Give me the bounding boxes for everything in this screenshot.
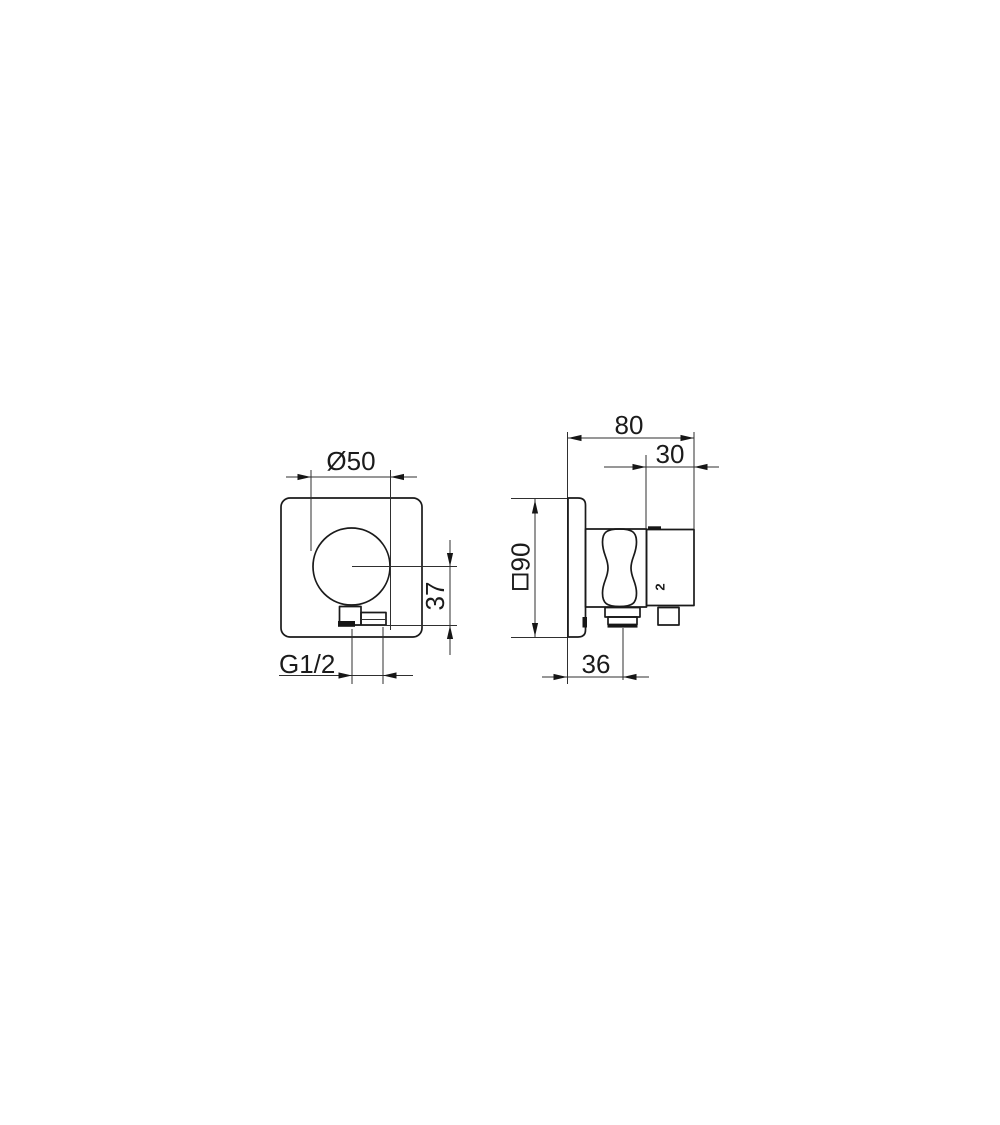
side-holder-body — [586, 529, 647, 607]
side-outlet-thread-hatch — [608, 624, 638, 627]
side-plate-size-label: 90 — [506, 543, 536, 572]
front-plate-outline — [281, 498, 422, 637]
arrow-icon — [694, 464, 708, 470]
arrow-icon — [532, 500, 538, 514]
side-outlet-offset-label: 36 — [582, 649, 611, 679]
arrow-icon — [633, 464, 647, 470]
front-view: Ø50 37 G1/2 — [279, 446, 457, 684]
drawing-canvas: Ø50 37 G1/2 — [0, 0, 1000, 1125]
side-outlet-flange — [605, 608, 640, 618]
dim-side-front-depth: 30 — [604, 439, 719, 529]
technical-drawing: Ø50 37 G1/2 — [0, 0, 1000, 1125]
front-diameter-label: Ø50 — [326, 446, 375, 476]
dim-front-thread: G1/2 — [279, 627, 413, 684]
dim-side-plate-size: 90 — [506, 499, 568, 638]
side-plate-outline — [568, 498, 586, 637]
side-plate-seal-mark — [583, 617, 588, 628]
arrow-icon — [568, 435, 582, 441]
square-symbol — [513, 575, 528, 590]
side-outlet-nut — [608, 617, 637, 625]
side-view: 2 80 30 90 — [506, 410, 720, 684]
side-part-label: 2 — [653, 583, 668, 590]
arrow-icon — [447, 553, 453, 567]
front-outlet-band — [361, 613, 386, 626]
dim-side-outlet-offset: 36 — [542, 649, 649, 680]
side-valve-stub — [658, 608, 679, 626]
front-outlet-thread-hatch — [338, 621, 355, 627]
arrow-icon — [298, 474, 312, 480]
side-front-depth-label: 30 — [656, 439, 685, 469]
front-height-offset-label: 37 — [420, 582, 450, 611]
side-valve-body — [647, 530, 695, 606]
side-total-depth-label: 80 — [615, 410, 644, 440]
arrow-icon — [339, 672, 353, 678]
dim-side-total-depth: 80 — [568, 410, 694, 529]
arrow-icon — [383, 672, 397, 678]
arrow-icon — [391, 474, 405, 480]
arrow-icon — [532, 623, 538, 637]
arrow-icon — [623, 674, 637, 680]
arrow-icon — [447, 626, 453, 640]
side-handshower-grip — [603, 529, 637, 607]
front-thread-label: G1/2 — [279, 649, 335, 679]
arrow-icon — [554, 674, 568, 680]
dim-front-diameter: Ø50 — [286, 446, 417, 630]
